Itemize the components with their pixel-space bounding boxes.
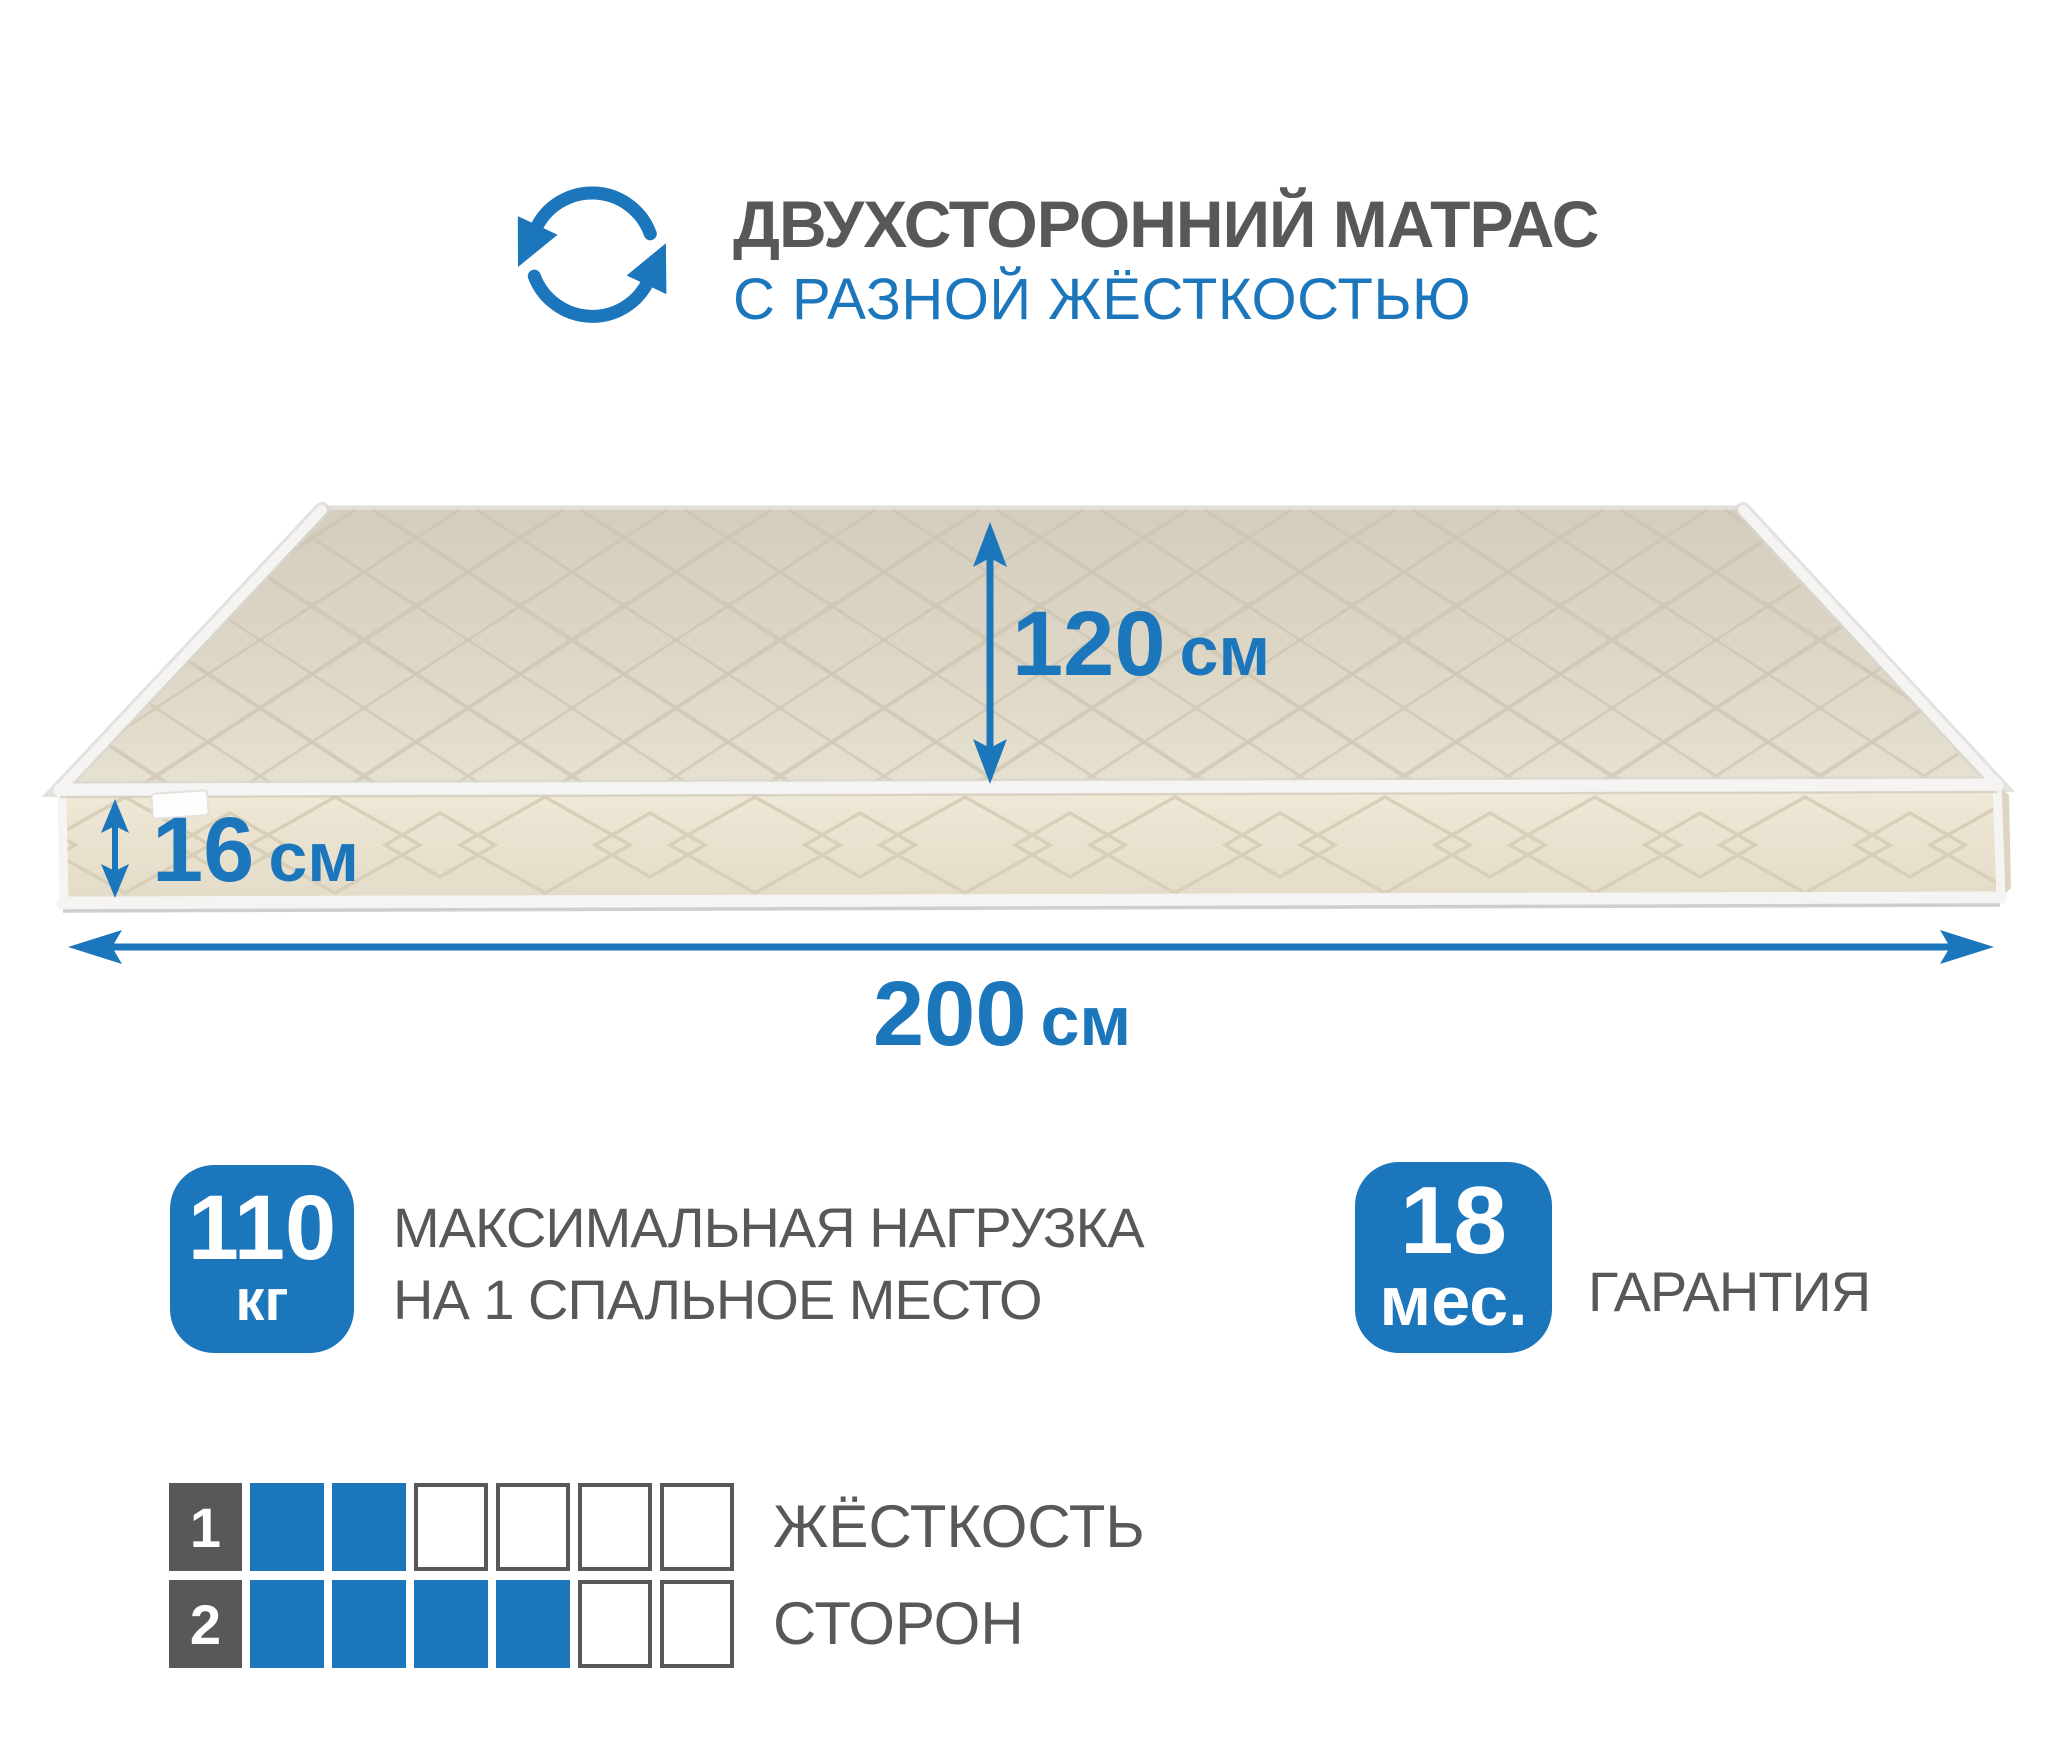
- firmness-cell: [414, 1483, 488, 1571]
- depth-unit: см: [1180, 612, 1271, 690]
- height-label: 16см: [152, 798, 359, 903]
- firmness-cell: [414, 1580, 488, 1668]
- page-title: ДВУХСТОРОННИЙ МАТРАС: [733, 186, 1598, 262]
- rotate-arrows-icon: [518, 193, 667, 316]
- max-load-badge: 110 кг: [170, 1165, 354, 1353]
- length-value: 200: [873, 963, 1027, 1065]
- infographic: ДВУХСТОРОННИЙ МАТРАС С РАЗНОЙ ЖЁСТКОСТЬЮ…: [0, 0, 2048, 1757]
- firmness-cell: [496, 1483, 570, 1571]
- firmness-cell: [578, 1483, 652, 1571]
- height-value: 16: [152, 799, 254, 901]
- max-load-label: МАКСИМАЛЬНАЯ НАГРУЗКА НА 1 СПАЛЬНОЕ МЕСТ…: [393, 1192, 1144, 1336]
- side-number-badge: 1: [169, 1483, 242, 1571]
- max-load-label-line2: НА 1 СПАЛЬНОЕ МЕСТО: [393, 1264, 1144, 1336]
- side-number-badge: 2: [169, 1580, 242, 1668]
- max-load-value: 110: [188, 1186, 336, 1271]
- firmness-cell: [660, 1580, 734, 1668]
- firmness-cell: [332, 1483, 406, 1571]
- firmness-cell: [578, 1580, 652, 1668]
- warranty-label: ГАРАНТИЯ: [1588, 1260, 1870, 1324]
- page-subtitle: С РАЗНОЙ ЖЁСТКОСТЬЮ: [733, 266, 1471, 333]
- max-load-label-line1: МАКСИМАЛЬНАЯ НАГРУЗКА: [393, 1192, 1144, 1264]
- length-arrow: [68, 930, 1994, 964]
- firmness-row-side2: 2: [169, 1580, 734, 1668]
- firmness-label-line2: СТОРОН: [773, 1580, 1024, 1668]
- warranty-value: 18: [1400, 1177, 1507, 1265]
- depth-value: 120: [1012, 593, 1166, 695]
- warranty-unit: мес.: [1379, 1265, 1527, 1339]
- warranty-badge: 18 мес.: [1355, 1162, 1552, 1353]
- firmness-cell: [332, 1580, 406, 1668]
- firmness-cell: [250, 1483, 324, 1571]
- length-label: 200см: [873, 962, 1131, 1067]
- firmness-cell: [496, 1580, 570, 1668]
- firmness-cell: [250, 1580, 324, 1668]
- height-unit: см: [268, 818, 359, 896]
- max-load-unit: кг: [235, 1271, 288, 1332]
- length-unit: см: [1041, 982, 1132, 1060]
- firmness-label-line1: ЖЁСТКОСТЬ: [773, 1483, 1145, 1571]
- firmness-cell: [660, 1483, 734, 1571]
- firmness-row-side1: 1: [169, 1483, 734, 1571]
- depth-label: 120см: [1012, 592, 1270, 697]
